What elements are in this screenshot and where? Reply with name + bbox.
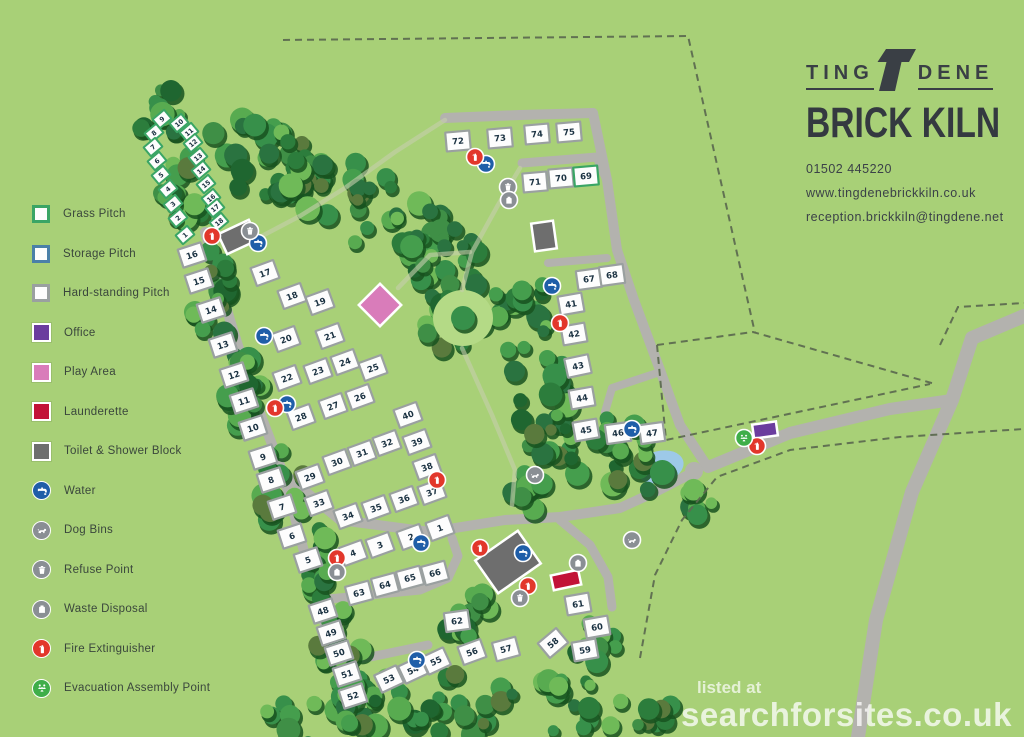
legend-label: Play Area [64,366,116,378]
water-icon [544,278,561,295]
legend-item-water: Water [32,482,210,500]
water-icon [256,328,273,345]
launderette-swatch [32,402,51,421]
legend-label: Toilet & Shower Block [64,445,182,457]
watermark-site-url: searchforsites.co.uk [681,698,1012,733]
tree [471,593,488,610]
pitch-number: 60 [590,622,603,634]
pitch-number: 41 [564,299,577,311]
tree [612,443,629,460]
icon-circle [256,328,273,345]
refuse-point-icon [512,590,529,607]
water-icon [409,652,426,669]
legend-label: Refuse Point [64,564,133,576]
pitch-41: 41 [558,293,585,316]
tree [414,712,429,727]
legend-item-play-area: Play Area [32,363,210,381]
pitch-number: 67 [583,274,596,286]
pitch-number: 68 [606,270,619,282]
water-icon [624,421,641,438]
tree [287,152,304,169]
legend-item-fire-extinguisher: Fire Extinguisher [32,640,210,658]
tree [341,715,358,732]
pitch-number: 47 [646,428,659,440]
pitch-71: 71 [522,171,548,192]
legend-label: Office [64,327,96,339]
legend-item-waste-disposal: Waste Disposal [32,600,210,618]
waste-disposal-swatch-waste-icon [32,600,51,619]
legend-label: Storage Pitch [63,248,136,260]
tree [564,452,578,466]
legend-label: Hard-standing Pitch [63,287,170,299]
tree [500,342,516,358]
legend-label: Waste Disposal [64,603,148,615]
pitch-number: 59 [578,645,591,657]
pitch-number: 71 [529,177,542,188]
water-icon [413,535,430,552]
tree [312,155,332,175]
tree [387,697,411,721]
fire-extinguisher-icon [472,540,489,557]
road-junction [685,462,703,480]
tree [306,696,321,711]
pitch-43: 43 [564,354,591,378]
email-address: reception.brickkiln@tingdene.net [806,210,1006,224]
pitch-60: 60 [584,616,611,639]
legend-item-launderette: Launderette [32,403,210,421]
tree [638,698,660,720]
tree [705,497,717,509]
waste-disposal-icon [570,555,587,572]
toilet-shower-block [531,221,557,252]
refuse-point-swatch-refuse-icon [32,560,51,579]
play-area-swatch [32,363,51,382]
tree [384,181,397,194]
tree [454,705,475,726]
tree [422,203,438,219]
tree [683,479,705,501]
tree [584,680,595,691]
icon-circle [527,467,544,484]
tree [160,80,181,101]
icon-circle [409,652,426,669]
pitch-number: 72 [452,136,465,147]
tree [548,725,559,736]
pitch-number: 70 [555,173,568,184]
pitch-68: 68 [599,264,625,286]
legend-item-hard-standing-pitch: Hard-standing Pitch [32,284,210,302]
pitch-number: 45 [579,425,592,437]
legend-item-refuse-point: Refuse Point [32,561,210,579]
tree [613,694,628,709]
tree [601,716,619,734]
legend-item-office: Office [32,324,210,342]
tree [560,423,571,434]
tree [608,470,627,489]
tree [478,718,490,730]
tree [512,280,532,300]
tree [578,697,600,719]
legend: Grass PitchStorage PitchHard-standing Pi… [32,205,210,697]
pitch-45: 45 [573,419,600,442]
office [752,421,778,438]
tree [632,719,644,731]
pitch-number: 74 [531,129,544,140]
icon-circle [544,278,561,295]
pitch-73: 73 [487,127,513,148]
waste-disposal-icon [329,564,346,581]
logo-word-dene: DENE [918,63,994,90]
park-map-page: 9108117126135144153162171181615141312111… [0,0,1024,737]
tree [524,424,544,444]
office-swatch [32,323,51,342]
dog-bin-icon [527,467,544,484]
tree [260,705,274,719]
tree [551,409,563,421]
pitch-number: 61 [571,599,584,611]
logo-word-ting: TING [806,63,874,90]
tree [418,324,437,343]
fire-extinguisher-icon [467,149,484,166]
tree [650,460,675,485]
icon-circle [515,545,532,562]
tree [369,695,382,708]
tree [390,212,404,226]
watermark: listed at searchforsites.co.uk [681,679,1012,733]
tree [545,424,557,436]
pitch-62: 62 [444,610,470,632]
legend-label: Grass Pitch [63,208,126,220]
grass-pitch-swatch [32,205,50,223]
tree [352,194,364,206]
legend-label: Evacuation Assembly Point [64,682,210,694]
toilet-shower-block-swatch [32,442,51,461]
dog-bin-icon [624,532,641,549]
tree [451,306,475,330]
park-name: BRICK KILN [806,98,966,147]
fire-extinguisher-icon [552,315,569,332]
tree [259,144,279,164]
tree [687,504,708,525]
tree [314,178,329,193]
tree [229,178,247,196]
pitch-number: 42 [567,329,580,341]
tree [231,159,254,182]
tree [202,122,224,144]
tree [447,221,463,237]
tree [400,235,423,258]
legend-item-storage-pitch: Storage Pitch [32,245,210,263]
pitch-47: 47 [639,422,665,444]
hard-standing-pitch-swatch [32,284,50,302]
icon-circle [624,421,641,438]
legend-label: Dog Bins [64,524,113,536]
tree [348,235,362,249]
legend-label: Water [64,485,96,497]
tree [446,665,465,684]
tree [279,173,303,197]
refuse-point-icon [242,223,259,240]
tingdene-logo: TING DENE [806,48,1006,90]
pitch-70: 70 [548,167,574,188]
legend-label: Fire Extinguisher [64,643,155,655]
tree [549,677,568,696]
tree [243,114,266,137]
phone-number: 01502 445220 [806,162,1006,176]
road [445,113,593,118]
watermark-listed-at: listed at [697,679,1012,697]
icon-circle [624,532,641,549]
pitch-44: 44 [569,387,596,410]
tree [314,527,337,550]
pitch-number: 69 [580,171,593,182]
legend-item-grass-pitch: Grass Pitch [32,205,210,223]
legend-item-dog-bins: Dog Bins [32,521,210,539]
tree [280,134,295,149]
water-swatch-water-icon [32,481,51,500]
tree [513,393,527,407]
storage-pitch-swatch [32,245,50,263]
tree [506,689,517,700]
waste-disposal-icon [501,192,518,209]
legend-item-evacuation-assembly-point: Evacuation Assembly Point [32,679,210,697]
fire-extinguisher-icon [429,472,446,489]
pitch-74: 74 [524,123,550,144]
website-url: www.tingdenebrickkiln.co.uk [806,186,1006,200]
pitch-61: 61 [565,593,592,616]
legend-label: Launderette [64,406,129,418]
evacuation-assembly-point-icon [736,430,753,447]
legend-item-toilet-shower-block: Toilet & Shower Block [32,442,210,460]
pitch-number: 73 [494,133,507,144]
tree [640,482,656,498]
evacuation-assembly-point-swatch-evac-icon [32,679,51,698]
pitch-number: 44 [575,393,588,405]
tree [489,287,503,301]
water-icon [515,545,532,562]
pitch-75: 75 [556,121,582,142]
icon-circle [413,535,430,552]
pitch-72: 72 [445,130,471,151]
tree [504,361,525,382]
pitch-number: 75 [563,127,576,138]
tingdene-t-icon [876,48,916,92]
road [548,258,607,263]
pitch-number: 62 [451,616,464,628]
tree [537,325,549,337]
tree [363,181,377,195]
tree [539,383,563,407]
branding-block: TING DENE BRICK KILN 01502 445220 www.ti… [806,48,1006,234]
pitch-59: 59 [572,639,599,662]
fire-extinguisher-swatch-fire-icon [32,639,51,658]
tree [517,341,530,354]
pitch-69: 69 [573,165,599,186]
tree [360,221,374,235]
fire-extinguisher-icon [267,400,284,417]
dog-bins-swatch-dog-icon [32,521,51,540]
